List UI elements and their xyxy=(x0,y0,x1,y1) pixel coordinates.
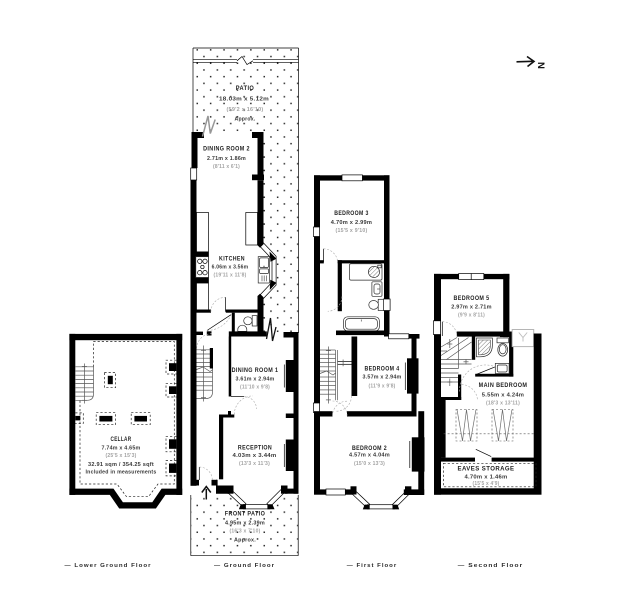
svg-text:Approx.: Approx. xyxy=(235,117,256,123)
svg-text:(9'9 x 8'11): (9'9 x 8'11) xyxy=(458,312,485,318)
svg-text:3.61m x 2.94m: 3.61m x 2.94m xyxy=(236,377,275,383)
svg-text:BEDROOM 3: BEDROOM 3 xyxy=(334,210,369,217)
svg-text:— Lower Ground Floor: — Lower Ground Floor xyxy=(65,563,152,569)
svg-text:DINING ROOM 2: DINING ROOM 2 xyxy=(203,146,250,153)
svg-text:KITCHEN: KITCHEN xyxy=(219,256,245,263)
svg-text:(16'3 x 7'10): (16'3 x 7'10) xyxy=(230,529,261,535)
svg-text:(11'10 x 9'8): (11'10 x 9'8) xyxy=(240,385,270,391)
svg-text:4.95m x 2.39m: 4.95m x 2.39m xyxy=(225,521,265,527)
svg-text:(59'2 x 16'10): (59'2 x 16'10) xyxy=(227,107,264,113)
svg-text:RECEPTION: RECEPTION xyxy=(238,445,272,452)
svg-text:18.03m x 5.12m: 18.03m x 5.12m xyxy=(219,97,269,103)
svg-text:(15'0 x 13'3): (15'0 x 13'3) xyxy=(354,461,385,467)
svg-text:32.91 sqm / 354.25 sqft: 32.91 sqm / 354.25 sqft xyxy=(88,462,154,468)
svg-text:PATIO: PATIO xyxy=(236,85,255,92)
svg-text:(19'11 x 11'8): (19'11 x 11'8) xyxy=(214,273,247,279)
svg-text:4.57m x 4.04m: 4.57m x 4.04m xyxy=(349,452,390,458)
svg-text:— Ground Floor: — Ground Floor xyxy=(214,563,275,569)
svg-text:(15'5 x 9'10): (15'5 x 9'10) xyxy=(336,228,368,234)
svg-text:EAVES STORAGE: EAVES STORAGE xyxy=(458,466,515,473)
svg-text:5.55m x 4.24m: 5.55m x 4.24m xyxy=(482,392,524,398)
svg-text:N: N xyxy=(535,62,546,69)
svg-text:MAIN BEDROOM: MAIN BEDROOM xyxy=(479,382,528,389)
svg-text:BEDROOM 5: BEDROOM 5 xyxy=(454,295,490,302)
svg-text:— First Floor: — First Floor xyxy=(347,563,397,569)
svg-text:4.70m x 1.46m: 4.70m x 1.46m xyxy=(465,475,508,481)
svg-text:(13'3 x 11'3): (13'3 x 11'3) xyxy=(239,461,270,467)
svg-text:2.71m x 1.86m: 2.71m x 1.86m xyxy=(207,156,246,162)
svg-text:(15'5 x 4'9): (15'5 x 4'9) xyxy=(473,481,500,487)
svg-text:(25'5 x 15'3): (25'5 x 15'3) xyxy=(106,453,137,459)
svg-text:BEDROOM 2: BEDROOM 2 xyxy=(352,445,387,452)
svg-text:7.74m x 4.65m: 7.74m x 4.65m xyxy=(102,446,141,452)
svg-text:(18'3 x 13'11): (18'3 x 13'11) xyxy=(486,401,520,407)
svg-text:4.70m x 2.99m: 4.70m x 2.99m xyxy=(331,220,372,226)
svg-text:FRONT PATIO: FRONT PATIO xyxy=(225,511,265,518)
svg-text:CELLAR: CELLAR xyxy=(111,436,132,443)
svg-text:Included in measurements: Included in measurements xyxy=(86,470,157,476)
svg-text:4.03m x 3.44m: 4.03m x 3.44m xyxy=(233,453,277,459)
svg-text:2.97m x 2.71m: 2.97m x 2.71m xyxy=(451,304,492,310)
svg-text:BEDROOM 4: BEDROOM 4 xyxy=(365,365,400,372)
svg-text:— Second Floor: — Second Floor xyxy=(458,563,524,569)
svg-text:(11'9 x 9'8): (11'9 x 9'8) xyxy=(369,384,396,390)
svg-text:6.06m x 3.56m: 6.06m x 3.56m xyxy=(212,265,249,271)
svg-text:(8'11 x 6'1): (8'11 x 6'1) xyxy=(213,164,240,170)
svg-text:3.57m x 2.94m: 3.57m x 2.94m xyxy=(363,374,402,380)
svg-text:Approx.: Approx. xyxy=(234,538,256,544)
svg-text:DINING ROOM 1: DINING ROOM 1 xyxy=(232,367,279,374)
